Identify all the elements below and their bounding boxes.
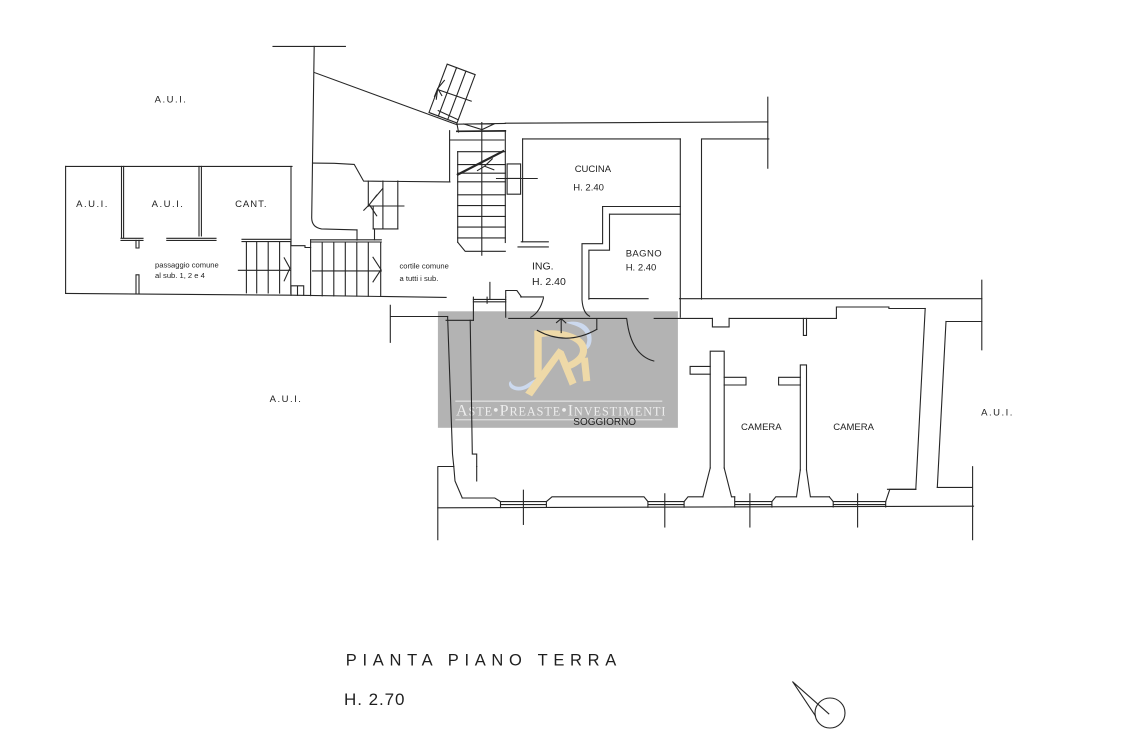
svg-text:ING.: ING. (532, 260, 554, 272)
svg-text:a tutti i sub.: a tutti i sub. (400, 274, 439, 283)
svg-text:PIANTA PIANO TERRA: PIANTA PIANO TERRA (346, 652, 622, 670)
svg-text:BAGNO: BAGNO (626, 249, 662, 260)
svg-text:SOGGIORNO: SOGGIORNO (573, 417, 636, 428)
svg-text:H. 2.40: H. 2.40 (573, 183, 604, 194)
svg-text:A.U.I.: A.U.I. (152, 199, 185, 210)
svg-text:A.U.I.: A.U.I. (270, 394, 303, 405)
svg-text:H. 2.40: H. 2.40 (532, 276, 566, 288)
svg-text:CUCINA: CUCINA (575, 164, 612, 175)
svg-text:H. 2.70: H. 2.70 (344, 690, 405, 709)
svg-text:A.U.I.: A.U.I. (981, 408, 1014, 419)
svg-text:CAMERA: CAMERA (833, 422, 874, 433)
svg-text:A.U.I.: A.U.I. (76, 199, 109, 210)
svg-text:H. 2.40: H. 2.40 (626, 263, 657, 274)
svg-text:al sub. 1, 2 e 4: al sub. 1, 2 e 4 (155, 271, 205, 280)
svg-text:CANT.: CANT. (235, 199, 267, 210)
svg-text:A.U.I.: A.U.I. (155, 94, 188, 105)
svg-text:CAMERA: CAMERA (741, 422, 782, 433)
svg-text:passaggio comune: passaggio comune (155, 261, 219, 270)
svg-text:cortile comune: cortile comune (400, 262, 449, 271)
